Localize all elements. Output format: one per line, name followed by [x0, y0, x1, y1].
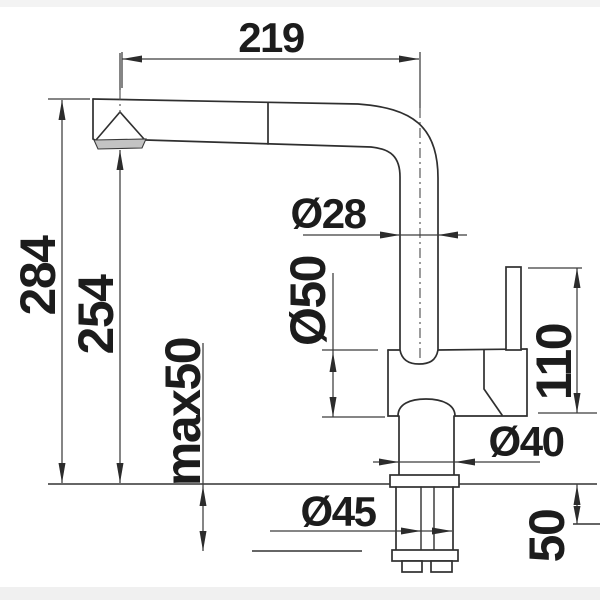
faucet-dimension-diagram: 219 Ø28 Ø40 Ø45 284 254 max50 Ø50 110 50 — [0, 0, 600, 600]
neck-cylinder — [399, 416, 454, 475]
label-base-diameter: Ø45 — [301, 488, 377, 535]
body-dome — [398, 399, 455, 416]
aerator-cone — [96, 112, 144, 140]
lever-base-joint — [484, 350, 502, 415]
technical-drawing-page: 219 Ø28 Ø40 Ø45 284 254 max50 Ø50 110 50 — [0, 0, 600, 600]
threaded-shank — [396, 487, 453, 550]
label-shank-length: 50 — [519, 510, 575, 563]
spout-inner-edge — [146, 140, 400, 349]
label-upper-height: 110 — [526, 324, 582, 400]
shank-inner-hoses — [421, 487, 434, 550]
label-total-height: 284 — [10, 235, 66, 316]
spout-outer-edge — [93, 99, 438, 349]
label-reach: 219 — [238, 14, 304, 61]
label-max-counter: max50 — [155, 338, 211, 486]
body-right-bottom-edge — [455, 349, 527, 416]
label-neck-diameter: Ø40 — [489, 418, 564, 465]
dimension-labels: 219 Ø28 Ø40 Ø45 284 254 max50 Ø50 110 50 — [10, 14, 582, 562]
centerlines — [120, 90, 420, 360]
label-outlet-height: 254 — [68, 274, 124, 355]
nut-tab-left — [402, 561, 422, 572]
body-left-bottom-edge — [388, 350, 398, 416]
mounting-flange — [390, 475, 459, 487]
riser-socket-dip — [400, 350, 438, 364]
lever-rod — [506, 267, 521, 350]
mounting-nut — [392, 550, 458, 561]
label-body-diameter: Ø50 — [280, 256, 336, 346]
label-spout-diameter: Ø28 — [291, 190, 367, 237]
spray-head-aerator — [94, 112, 146, 149]
aerator-face — [94, 139, 146, 149]
nut-tab-right — [431, 561, 452, 572]
spray-head-end — [93, 99, 95, 140]
